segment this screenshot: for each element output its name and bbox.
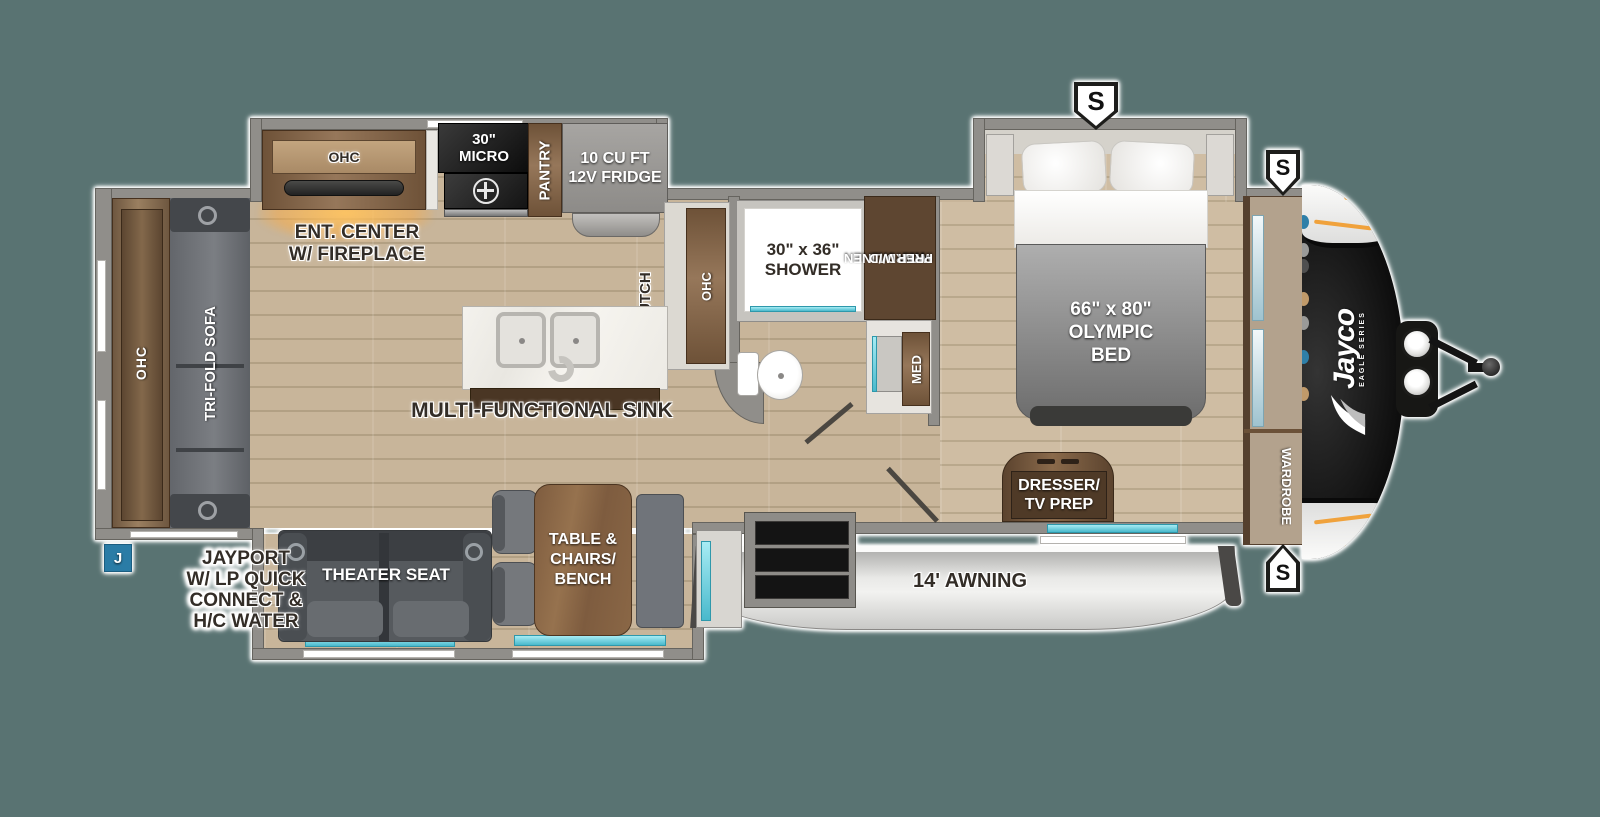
rear-window [97, 260, 106, 352]
rv-floorplan: OHC 30" MICRO PANTRY 10 CU FT 12V FRIDGE… [0, 0, 1600, 817]
dresser-handle [1037, 459, 1055, 464]
olympic-bed: 66" x 80" OLYMPIC BED [1016, 244, 1206, 420]
cap-orange-stripe-top [1314, 219, 1372, 230]
marker-light-icon-2 [1362, 193, 1375, 200]
chair-back-2 [493, 567, 505, 623]
bed-slide-left-wall [973, 118, 985, 202]
ward-linen-cabinet: WARD/LINEN WITH W/D PREP [864, 196, 936, 320]
jayport-label-1: JAYPORT [128, 548, 364, 569]
bed-foot-shadow [1030, 406, 1192, 426]
front-cap-band-top [1302, 185, 1404, 248]
cap-deco-dot [1302, 259, 1309, 273]
dinette-window [512, 650, 664, 658]
rear-ohc-label: OHC [133, 346, 149, 380]
dinette-label-2: CHAIRS/ [550, 550, 616, 570]
med-label: MED [909, 355, 924, 384]
entry-door-window [701, 541, 711, 621]
tv-icon [284, 180, 404, 196]
island-label: MULTI-FUNCTIONAL SINK [411, 399, 673, 423]
ent-center-label-1: ENT. CENTER [262, 222, 452, 244]
pantry-label: PANTRY [537, 140, 554, 200]
dinette-label-3: BENCH [555, 570, 612, 590]
dresser-label-panel: DRESSER/ TV PREP [1011, 471, 1107, 519]
shower-label-1: 30" x 36" [767, 240, 840, 260]
fridge-front [572, 213, 660, 237]
ward-linen-label-block: WARD/LINEN WITH W/D PREP [878, 217, 923, 299]
spare-badge-front-lower-letter: S [1276, 560, 1291, 586]
brand-name: Jayco [1331, 309, 1359, 389]
sofa-label: TRI-FOLD SOFA [202, 306, 219, 421]
theater-window [303, 650, 455, 658]
chair-back [493, 495, 505, 551]
micro-label-2: MICRO [459, 148, 509, 165]
marker-light-icon-4 [1362, 545, 1375, 552]
refrigerator: 10 CU FT 12V FRIDGE [562, 123, 668, 213]
brand-logo: Jayco EAGLE SERIES [1302, 293, 1394, 453]
dresser: DRESSER/ TV PREP [1002, 452, 1114, 522]
sofa-pin-icon [198, 206, 217, 225]
dinette-label-1: TABLE & [549, 530, 617, 550]
dresser-label-2: TV PREP [1025, 495, 1093, 514]
sofa-pin-icon-2 [198, 501, 217, 520]
wardrobe-mirror-panel-2 [1252, 329, 1264, 427]
shower-threshold [750, 306, 856, 312]
island-label-block: MULTI-FUNCTIONAL SINK [392, 398, 692, 424]
dresser-window-sill [1047, 524, 1178, 533]
step-tread [755, 548, 849, 572]
jayport-label-2: W/ LP QUICK [128, 569, 364, 590]
sink-drain-icon-2 [573, 338, 579, 344]
wardrobe-label-block: WARDROBE [1272, 434, 1302, 538]
dinette-bench [636, 494, 684, 628]
spare-badge-front-upper-letter: S [1276, 155, 1291, 181]
micro-label-1: 30" [472, 131, 496, 148]
bed-sheet [1014, 190, 1208, 248]
dinette-chair-2 [492, 562, 538, 626]
ent-center-ohc-label: OHC [328, 149, 359, 165]
front-cap-band-bottom [1302, 498, 1404, 559]
dresser-handle-2 [1061, 459, 1079, 464]
bed-slide-top-wall [973, 118, 1247, 130]
sofa-seam-2 [176, 448, 244, 452]
jayport-label-4: H/C WATER [128, 611, 364, 632]
hutch-ohc-label: OHC [698, 272, 713, 301]
rv-floorplan-canvas: OHC 30" MICRO PANTRY 10 CU FT 12V FRIDGE… [0, 0, 1600, 817]
front-cap: Jayco EAGLE SERIES [1302, 185, 1404, 559]
ent-center-ohc: OHC [272, 140, 416, 174]
pillow-left [1021, 140, 1108, 196]
awning-label-block: 14' AWNING [870, 568, 1070, 594]
rear-window-2 [97, 400, 106, 490]
tri-fold-sofa: TRI-FOLD SOFA [170, 198, 250, 528]
cooktop [444, 173, 528, 209]
microwave: 30" MICRO [438, 123, 530, 173]
propane-tank-icon [1401, 328, 1433, 360]
nightstand-left [986, 134, 1014, 196]
dresser-label-1: DRESSER/ [1018, 476, 1100, 495]
dinette-chair [492, 490, 538, 554]
spare-badge-top-letter: S [1087, 86, 1104, 117]
hitch-ball-icon [1482, 358, 1500, 376]
hutch-ohc: OHC [686, 208, 726, 364]
ward-label-3: PREP [874, 251, 956, 266]
brand-series: EAGLE SERIES [1359, 309, 1366, 389]
nightstand-right [1206, 134, 1234, 196]
fridge-label-1: 10 CU FT [580, 149, 649, 168]
cap-orange-stripe-bottom [1314, 513, 1372, 524]
med-sink-accent [872, 336, 877, 392]
marker-light-icon [1344, 193, 1357, 200]
bed-label-1: 66" x 80" [1070, 298, 1151, 321]
dinette-window-sill [514, 635, 666, 646]
jayport-badge-letter: J [114, 550, 122, 567]
range-front [444, 209, 528, 217]
eagle-icon [1329, 393, 1367, 437]
sink-drain-icon [519, 338, 525, 344]
bed-label-3: BED [1091, 344, 1131, 367]
bed-label-2: OLYMPIC [1069, 321, 1154, 344]
ent-center-label-2: W/ FIREPLACE [262, 244, 452, 266]
awning-label: 14' AWNING [913, 570, 1027, 593]
toilet-tank [737, 352, 759, 396]
ent-center-label-block: ENT. CENTER W/ FIREPLACE [262, 222, 452, 270]
fridge-label-2: 12V FRIDGE [568, 168, 661, 187]
toilet-drain-icon [778, 373, 784, 379]
cap-deco-dot [1302, 243, 1309, 257]
spare-badge-front-lower: S [1266, 544, 1300, 592]
pantry: PANTRY [528, 123, 562, 217]
theater-pin-icon-2 [465, 543, 483, 561]
sink-bowl-left [496, 312, 546, 368]
step-tread [755, 575, 849, 599]
entry-steps [744, 512, 856, 608]
jayport-label-block: JAYPORT W/ LP QUICK CONNECT & H/C WATER [128, 548, 364, 640]
pillow-right [1109, 140, 1196, 196]
theater-cushion-2 [393, 601, 469, 637]
jayport-badge: J [104, 544, 132, 572]
burner-cross-h [477, 189, 494, 192]
marker-light-icon-3 [1344, 545, 1357, 552]
entry-landing [696, 530, 742, 628]
med-cabinet: MED [902, 332, 930, 406]
wardrobe-edge [1244, 197, 1250, 544]
wardrobe-label: WARDROBE [1280, 447, 1295, 524]
propane-tank-icon-2 [1401, 366, 1433, 398]
burner-icon [473, 178, 499, 204]
jayport-label-3: CONNECT & [128, 590, 364, 611]
bed-slide-right-wall [1235, 118, 1247, 202]
rear-ohc-cabinet: OHC [112, 198, 170, 528]
wardrobe-divider [1244, 429, 1310, 433]
rear-bottom-window [130, 531, 238, 538]
kitchen-slide-left-wall [250, 118, 262, 202]
kitchen-counter-sliver [426, 130, 438, 210]
toilet-bowl [757, 350, 803, 400]
step-tread [755, 521, 849, 545]
wardrobe-mirror-panel [1252, 215, 1264, 321]
dinette-table: TABLE & CHAIRS/ BENCH [534, 484, 632, 636]
dresser-window [1040, 536, 1186, 544]
shower-label-2: SHOWER [765, 260, 842, 280]
